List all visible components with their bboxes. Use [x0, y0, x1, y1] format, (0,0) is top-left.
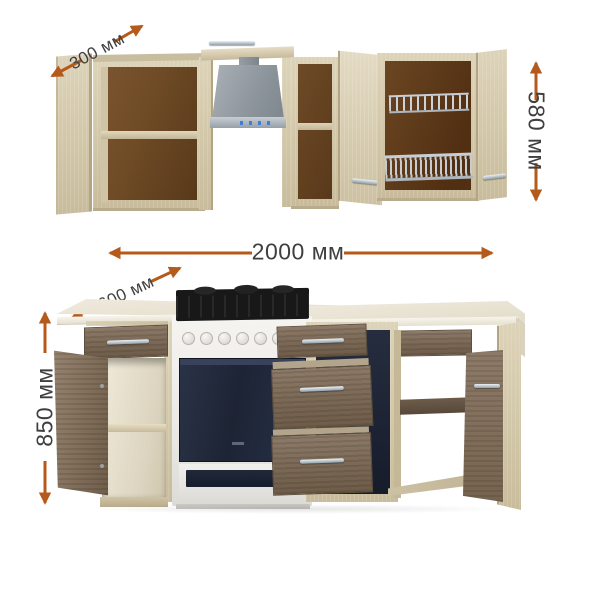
- dish-rack-upper: [389, 93, 470, 114]
- cabinet-shelf: [298, 123, 332, 130]
- drawer-front: [271, 432, 373, 495]
- hood-flap-handle: [209, 41, 255, 45]
- base-cabinet-left-interior: [102, 358, 166, 497]
- stove-knob: [254, 332, 267, 345]
- cabinet-interior: [298, 64, 332, 199]
- base-drawer-front: [84, 325, 168, 360]
- sink-cabinet-top-rail: [396, 329, 472, 356]
- wall-cabinet-middle-door: [338, 51, 382, 206]
- floor-shadow: [80, 504, 510, 514]
- base-cabinet-left-door: [54, 346, 108, 500]
- door-handle: [352, 178, 378, 185]
- stove-knob: [218, 332, 231, 345]
- dish-rack-lower: [385, 152, 474, 181]
- cabinet-shelf: [101, 131, 197, 139]
- drawer-handle: [300, 386, 344, 392]
- oven-brand-mark: [232, 442, 244, 445]
- wall-cabinet-middle: [291, 57, 339, 209]
- stove-knob: [236, 332, 249, 345]
- hood-buttons: [240, 121, 276, 125]
- drawer-handle: [302, 338, 344, 343]
- burner: [234, 285, 258, 294]
- wall-cabinet-right: [377, 53, 479, 201]
- sink-cabinet-door: [463, 350, 503, 502]
- stove-knob: [200, 332, 213, 345]
- burner: [194, 286, 216, 294]
- drawer-front: [271, 365, 374, 430]
- drawer-handle: [300, 458, 344, 464]
- wall-cabinet-right-door: [476, 49, 507, 201]
- drawer-3: [271, 426, 373, 495]
- dim-base-height-label: 850 мм: [34, 367, 57, 446]
- grate-bars: [176, 294, 309, 318]
- cabinet-shelf: [102, 424, 166, 432]
- door-handle: [483, 173, 506, 180]
- hood-cabinet-side-left: [199, 57, 213, 210]
- hinge: [100, 464, 104, 468]
- hood-control-strip: [210, 117, 286, 128]
- kitchen-dimensions-diagram: 300 мм 580 мм 2000 мм 600 мм 850 мм: [0, 0, 600, 600]
- dim-wall-height-label: 580 мм: [525, 91, 548, 170]
- drawer-1: [276, 323, 367, 358]
- hinge: [100, 384, 104, 388]
- door-handle: [474, 384, 500, 388]
- drawer-handle: [107, 339, 149, 344]
- stove-knob: [182, 332, 195, 345]
- burner: [272, 285, 294, 293]
- drawer-2: [271, 358, 374, 430]
- range-hood: [212, 65, 284, 119]
- dim-total-width-label: 2000 мм: [252, 241, 345, 264]
- stove-burner-grate: [176, 288, 309, 321]
